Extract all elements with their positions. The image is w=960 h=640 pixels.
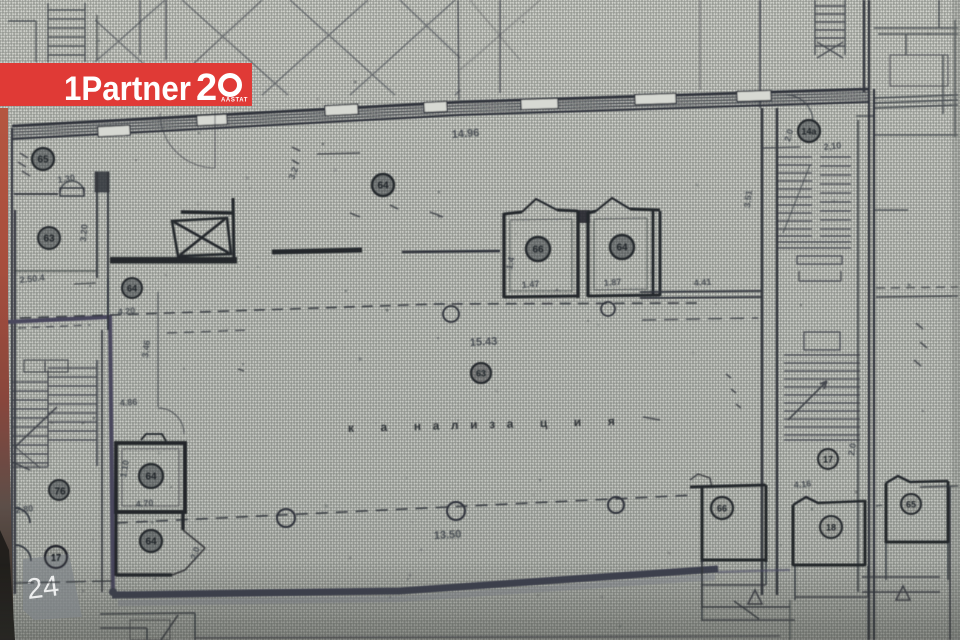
svg-text:17: 17	[51, 553, 61, 563]
svg-text:24: 24	[25, 570, 61, 606]
svg-text:2: 2	[196, 67, 217, 109]
svg-text:1Partner: 1Partner	[64, 70, 191, 108]
svg-text:AASTAT: AASTAT	[221, 98, 248, 104]
